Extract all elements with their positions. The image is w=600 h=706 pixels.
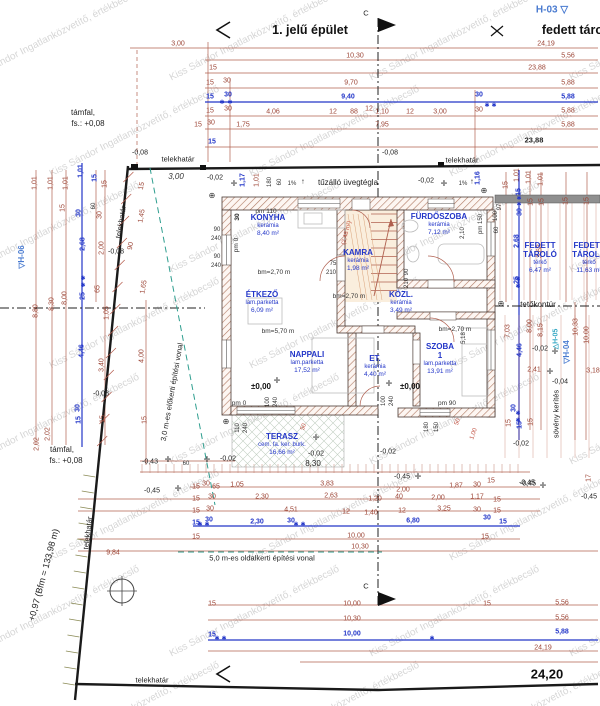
dining-table xyxy=(248,298,282,324)
walls xyxy=(222,195,600,417)
sofa xyxy=(312,338,374,393)
dimension-chain-lines xyxy=(82,102,598,640)
storage-posts xyxy=(500,203,596,458)
survey-circle xyxy=(107,576,137,606)
bathtub xyxy=(438,244,484,264)
dimension-lines xyxy=(36,42,598,662)
blueprint-canvas: Kiss Sándor Ingatlanközvetítő, értékbecs… xyxy=(0,0,600,706)
section-line xyxy=(0,18,600,682)
toilet xyxy=(407,246,419,262)
plan-geometry xyxy=(0,0,600,706)
terrace xyxy=(232,415,344,467)
bed xyxy=(462,328,488,396)
boundary-wall xyxy=(495,195,600,203)
